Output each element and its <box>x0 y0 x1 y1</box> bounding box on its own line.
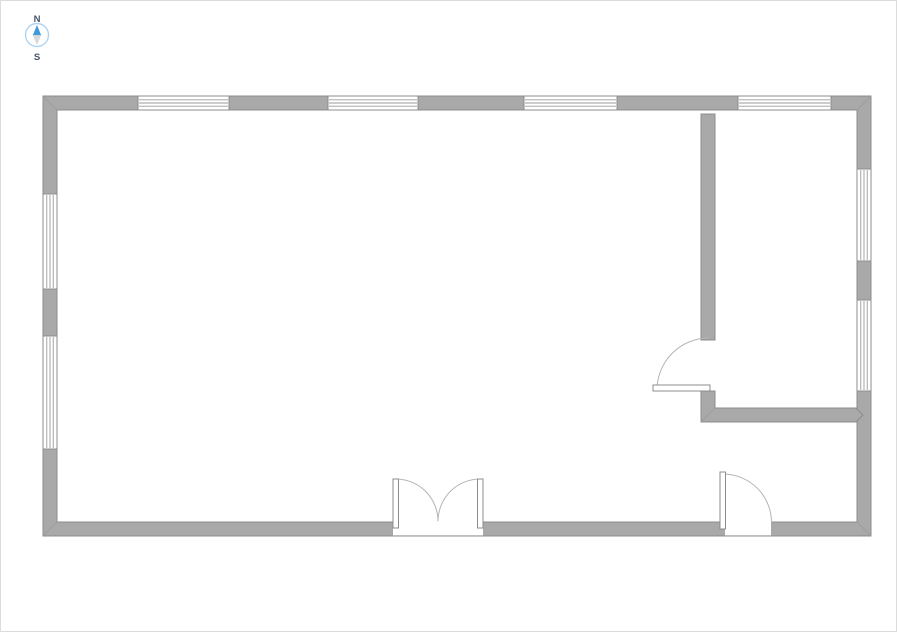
double-door-left-swing <box>396 479 438 521</box>
interior-door-swing <box>657 338 709 390</box>
double-door-right-swing <box>438 479 480 521</box>
compass-south-label: S <box>34 52 40 63</box>
floor-plan-canvas[interactable] <box>1 1 897 632</box>
double-door-left-leaf <box>393 479 399 528</box>
single-door-leaf <box>720 472 726 529</box>
door-opening <box>393 521 483 535</box>
single-door-swing <box>723 474 772 523</box>
floor-plan-page: N S <box>0 0 897 632</box>
partition-lower-l <box>701 391 863 422</box>
double-door-right-leaf <box>478 479 484 528</box>
partition-vertical <box>701 114 715 340</box>
door-opening <box>725 521 771 535</box>
interior-door-leaf <box>653 385 710 391</box>
exterior-wall <box>43 96 871 536</box>
compass-rose[interactable]: N S <box>12 5 62 67</box>
